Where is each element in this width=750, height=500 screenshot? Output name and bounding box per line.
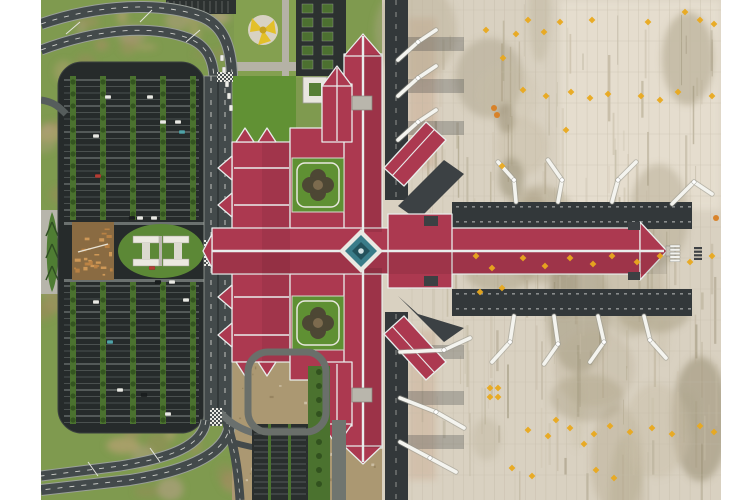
aerial-photo-svg [41,0,721,500]
courtyard-garden [292,296,344,350]
north-tree-parking [296,0,346,76]
crosswalk [210,408,222,426]
construction-zone [72,222,114,280]
flower-garden-ornament [248,15,278,45]
center-building [118,224,204,278]
crosswalk [217,72,233,82]
parking-lot [58,62,205,433]
courtyard-garden [292,158,344,212]
aerial-photo [41,0,721,500]
screenshot-canvas [0,0,750,500]
